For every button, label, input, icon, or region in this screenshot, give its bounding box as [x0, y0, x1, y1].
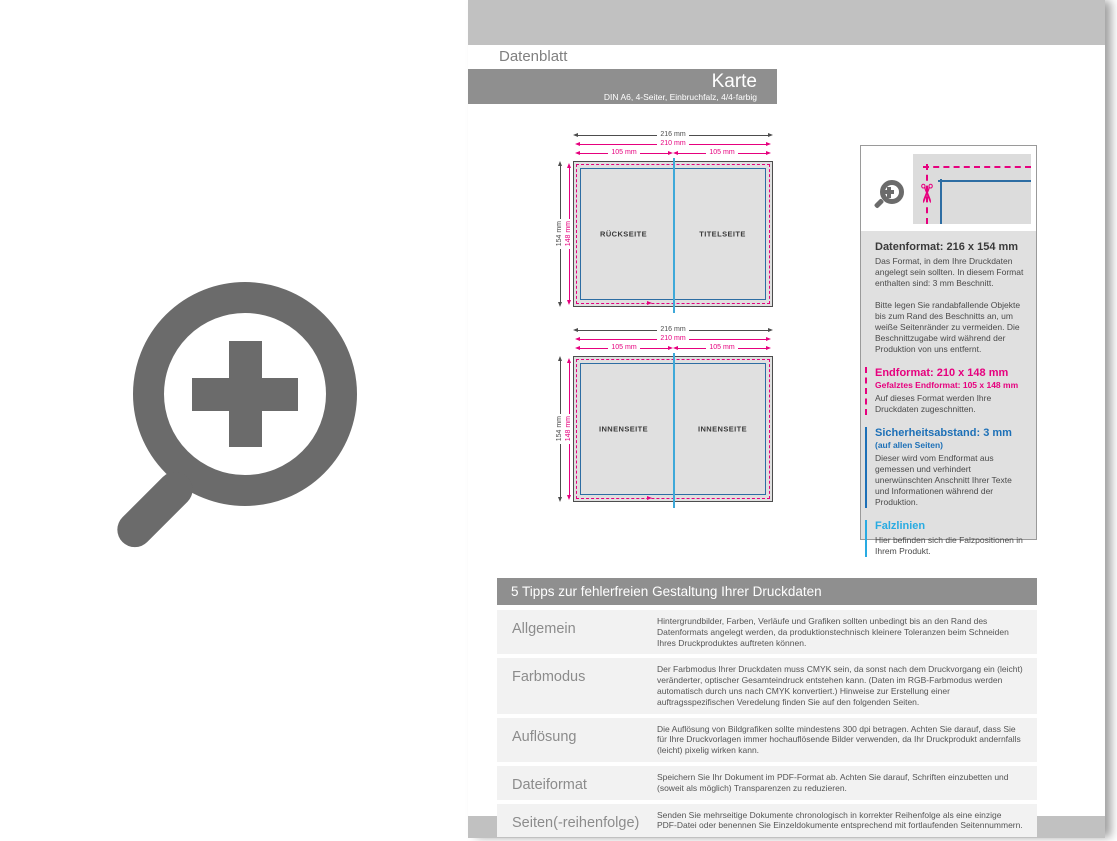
section-heading: Sicherheitsabstand: 3 mm — [875, 427, 1024, 440]
section-endformat: Endformat: 210 x 148 mm Gefalztes Endfor… — [865, 367, 1024, 415]
dim-endformat-width: 210 mm — [575, 140, 771, 148]
dim-datenformat-width: 216 mm — [573, 131, 773, 139]
dim-half-left: 105 mm — [575, 344, 673, 352]
datenblatt-tab: Datenblatt — [490, 45, 591, 69]
tips-header: 5 Tipps zur fehlerfreien Gestaltung Ihre… — [497, 578, 1037, 605]
bleed-line-horizontal — [923, 166, 1031, 168]
section-heading: Endformat: 210 x 148 mm — [875, 367, 1024, 380]
section-body: Dieser wird vom Endformat aus gemessen u… — [875, 453, 1024, 508]
section-subheading: (auf allen Seiten) — [875, 440, 1024, 451]
fold-marker — [647, 301, 652, 305]
section-subheading: Gefalztes Endformat: 105 x 148 mm — [875, 380, 1024, 391]
row-text: Hintergrundbilder, Farben, Verläufe und … — [649, 610, 1037, 654]
section-datenformat: Datenformat: 216 x 154 mm Das Format, in… — [875, 241, 1024, 355]
zoom-plus-icon — [103, 278, 361, 546]
card-face: INNENSEITE INNENSEITE — [573, 356, 773, 502]
card-corner-detail: ✂ — [913, 154, 1031, 224]
diagram-outside: 216 mm 210 mm 105 mm 105 mm 154 mm 148 m… — [573, 161, 773, 307]
dim-half-right: 105 mm — [673, 149, 771, 157]
dim-endformat-height: 148 mm — [565, 163, 573, 305]
row-label: Farbmodus — [497, 658, 649, 713]
row-label: Allgemein — [497, 610, 649, 654]
row-text: Der Farbmodus Ihrer Druckdaten muss CMYK… — [649, 658, 1037, 713]
table-row: Allgemein Hintergrundbilder, Farben, Ver… — [497, 610, 1037, 654]
zoom-plus-icon-small — [874, 178, 906, 210]
section-falzlinien: Falzlinien Hier befinden sich die Falzpo… — [865, 520, 1024, 557]
row-label: Dateiformat — [497, 766, 649, 800]
panel-label-left: RÜCKSEITE — [574, 230, 673, 239]
section-body: Das Format, in dem Ihre Druckdaten angel… — [875, 256, 1024, 289]
section-heading: Falzlinien — [875, 520, 1024, 533]
panel-label-left: INNENSEITE — [574, 425, 673, 434]
row-label: Seiten(-reihenfolge) — [497, 804, 649, 838]
dim-datenformat-width: 216 mm — [573, 326, 773, 334]
section-heading: Datenformat: 216 x 154 mm — [875, 241, 1024, 254]
magnifier-handle — [874, 198, 885, 209]
dim-datenformat-height: 154 mm — [556, 356, 564, 502]
table-row: Farbmodus Der Farbmodus Ihrer Druckdaten… — [497, 658, 1037, 713]
row-text: Speichern Sie Ihr Dokument im PDF-Format… — [649, 766, 1037, 800]
datasheet-page: Datenblatt Karte DIN A6, 4-Seiter, Einbr… — [468, 0, 1105, 838]
top-gray-band — [468, 0, 1105, 45]
dim-half-right: 105 mm — [673, 344, 771, 352]
dim-endformat-width: 210 mm — [575, 335, 771, 343]
tips-table: Allgemein Hintergrundbilder, Farben, Ver… — [497, 610, 1037, 841]
plus-vertical — [887, 187, 891, 198]
fold-marker — [647, 496, 652, 500]
dim-half-widths: 105 mm 105 mm — [575, 344, 771, 352]
page-title: Karte — [712, 72, 757, 92]
diagram-inside: 216 mm 210 mm 105 mm 105 mm 154 mm 148 m… — [573, 356, 773, 502]
plus-vertical — [229, 341, 262, 447]
section-body: Hier befinden sich die Falzpositionen in… — [875, 535, 1024, 557]
dim-datenformat-height: 154 mm — [556, 161, 564, 307]
card-face: RÜCKSEITE TITELSEITE — [573, 161, 773, 307]
panel-label-right: TITELSEITE — [673, 230, 772, 239]
scissors-icon: ✂ — [910, 183, 941, 205]
magnifier-handle — [110, 465, 200, 555]
table-row: Auflösung Die Auflösung von Bildgrafiken… — [497, 718, 1037, 762]
info-sections: Datenformat: 216 x 154 mm Das Format, in… — [861, 231, 1036, 569]
section-body: Bitte legen Sie randabfallende Objekte b… — [875, 300, 1024, 355]
panel-label-right: INNENSEITE — [673, 425, 772, 434]
section-sicherheitsabstand: Sicherheitsabstand: 3 mm (auf allen Seit… — [865, 427, 1024, 508]
row-label: Auflösung — [497, 718, 649, 762]
dim-half-left: 105 mm — [575, 149, 673, 157]
table-row: Dateiformat Speichern Sie Ihr Dokument i… — [497, 766, 1037, 800]
dim-half-widths: 105 mm 105 mm — [575, 149, 771, 157]
row-text: Senden Sie mehrseitige Dokumente chronol… — [649, 804, 1037, 838]
table-row: Seiten(-reihenfolge) Senden Sie mehrseit… — [497, 804, 1037, 838]
format-info-box: ✂ Datenformat: 216 x 154 mm Das Format, … — [860, 145, 1037, 540]
section-body: Auf dieses Format werden Ihre Druckdaten… — [875, 393, 1024, 415]
row-text: Die Auflösung von Bildgrafiken sollte mi… — [649, 718, 1037, 762]
page-subtitle: DIN A6, 4-Seiter, Einbruchfalz, 4/4-farb… — [604, 92, 757, 102]
safety-line-horizontal — [938, 180, 1031, 182]
dim-endformat-height: 148 mm — [565, 358, 573, 500]
title-bar: Karte DIN A6, 4-Seiter, Einbruchfalz, 4/… — [468, 69, 777, 104]
zoom-detail-area: ✂ — [861, 146, 1036, 231]
